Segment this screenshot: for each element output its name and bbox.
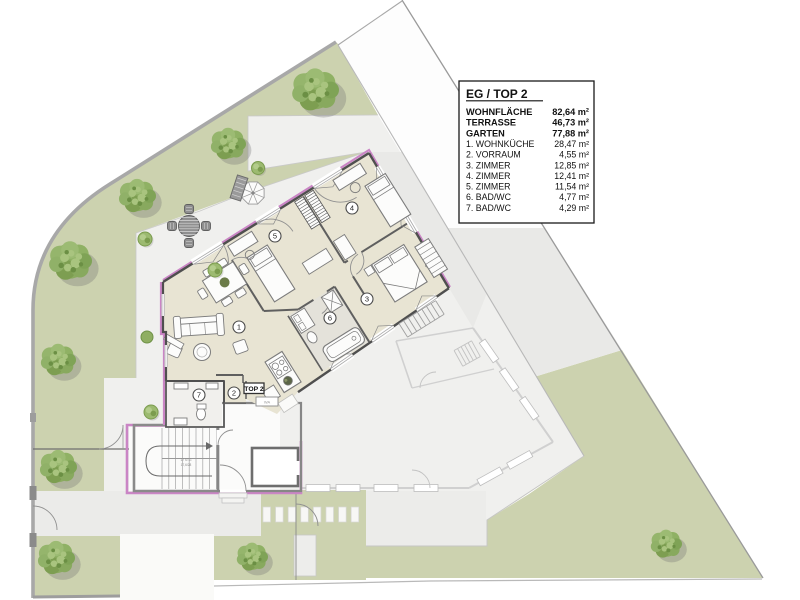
svg-text:2: 2	[232, 389, 236, 398]
svg-text:WOHNFLÄCHE: WOHNFLÄCHE	[466, 107, 532, 117]
svg-text:17 STG: 17 STG	[181, 458, 193, 462]
svg-text:5: 5	[273, 232, 277, 241]
svg-text:3. ZIMMER: 3. ZIMMER	[466, 160, 510, 170]
svg-text:4,55 m²: 4,55 m²	[559, 150, 589, 160]
svg-text:2. VORRAUM: 2. VORRAUM	[466, 150, 521, 160]
svg-text:1: 1	[237, 323, 241, 332]
svg-text:4,29 m²: 4,29 m²	[559, 203, 589, 213]
svg-text:12,85 m²: 12,85 m²	[554, 160, 589, 170]
svg-text:1. WOHNKÜCHE: 1. WOHNKÜCHE	[466, 139, 535, 149]
svg-text:3: 3	[365, 295, 369, 304]
svg-text:EG / TOP 2: EG / TOP 2	[466, 87, 528, 101]
svg-text:6. BAD/WC: 6. BAD/WC	[466, 192, 512, 202]
svg-text:12,41 m²: 12,41 m²	[554, 171, 589, 181]
svg-text:17,6/28: 17,6/28	[181, 463, 192, 467]
svg-text:TOP 2: TOP 2	[244, 386, 264, 393]
svg-text:28,47 m²: 28,47 m²	[554, 139, 589, 149]
svg-text:82,64 m²: 82,64 m²	[552, 107, 589, 117]
svg-text:TERRASSE: TERRASSE	[466, 118, 516, 128]
svg-text:7: 7	[197, 391, 201, 400]
svg-text:WA: WA	[264, 400, 271, 405]
svg-text:4,77 m²: 4,77 m²	[559, 192, 589, 202]
svg-text:7. BAD/WC: 7. BAD/WC	[466, 203, 512, 213]
svg-text:4. ZIMMER: 4. ZIMMER	[466, 171, 510, 181]
svg-text:5. ZIMMER: 5. ZIMMER	[466, 182, 510, 192]
svg-text:GARTEN: GARTEN	[466, 128, 505, 138]
svg-text:77,88 m²: 77,88 m²	[552, 128, 589, 138]
svg-text:4: 4	[350, 204, 354, 213]
svg-text:6: 6	[328, 314, 332, 323]
svg-text:11,54 m²: 11,54 m²	[555, 182, 589, 192]
svg-text:46,73 m²: 46,73 m²	[552, 118, 589, 128]
